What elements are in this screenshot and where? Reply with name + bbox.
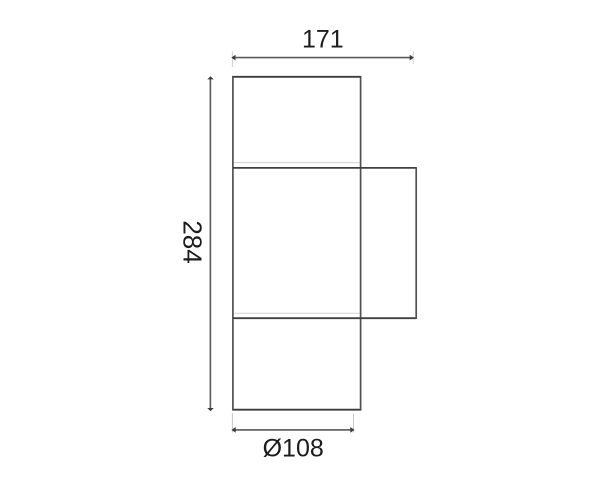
svg-text:171: 171 xyxy=(302,26,344,54)
svg-text:Ø108: Ø108 xyxy=(263,434,324,462)
svg-text:284: 284 xyxy=(178,220,208,263)
